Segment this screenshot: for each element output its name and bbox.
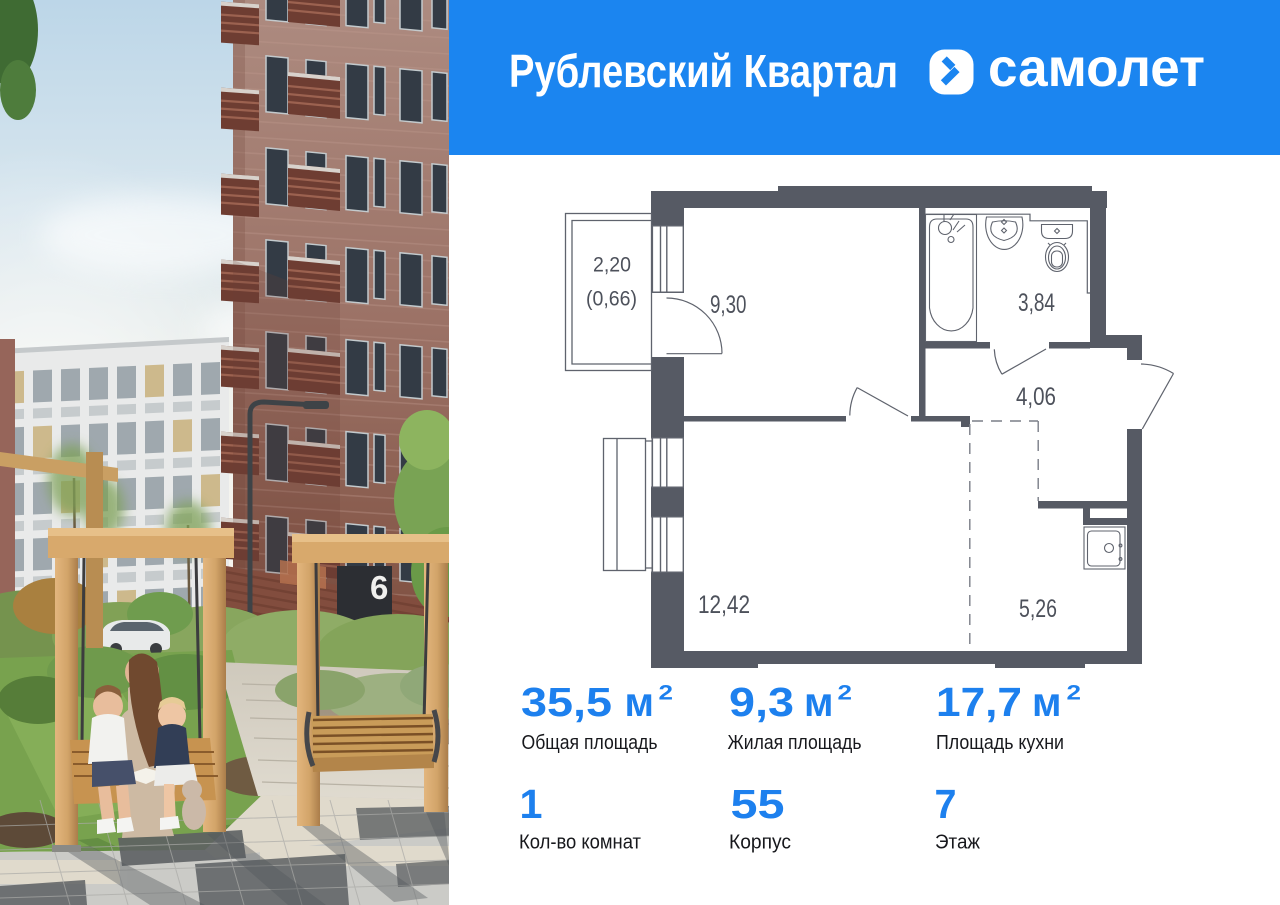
svg-text:Жилая площадь: Жилая площадь: [728, 732, 862, 754]
svg-text:Этаж: Этаж: [935, 832, 981, 854]
svg-text:2: 2: [838, 681, 853, 705]
svg-text:(0,66): (0,66): [586, 287, 637, 311]
svg-text:м: м: [1032, 679, 1062, 725]
svg-text:35,5: 35,5: [521, 679, 612, 725]
svg-text:Общая площадь: Общая площадь: [522, 732, 658, 754]
svg-text:7: 7: [935, 781, 957, 827]
svg-text:2,20: 2,20: [593, 253, 631, 277]
svg-text:1: 1: [520, 781, 543, 827]
svg-text:м: м: [804, 679, 834, 725]
svg-text:2: 2: [1067, 681, 1082, 705]
svg-text:2: 2: [659, 681, 674, 705]
svg-text:4,06: 4,06: [1016, 383, 1056, 411]
svg-text:12,42: 12,42: [698, 591, 750, 619]
svg-text:9,30: 9,30: [710, 291, 747, 319]
svg-text:55: 55: [731, 781, 785, 827]
svg-text:17,7: 17,7: [936, 679, 1022, 725]
svg-text:Кол-во комнат: Кол-во комнат: [519, 832, 641, 854]
svg-text:9,3: 9,3: [729, 679, 794, 725]
svg-text:Площадь кухни: Площадь кухни: [936, 732, 1064, 754]
svg-text:3,84: 3,84: [1018, 289, 1055, 317]
svg-text:м: м: [625, 679, 655, 725]
svg-text:5,26: 5,26: [1019, 595, 1057, 623]
svg-text:Корпус: Корпус: [729, 832, 791, 854]
